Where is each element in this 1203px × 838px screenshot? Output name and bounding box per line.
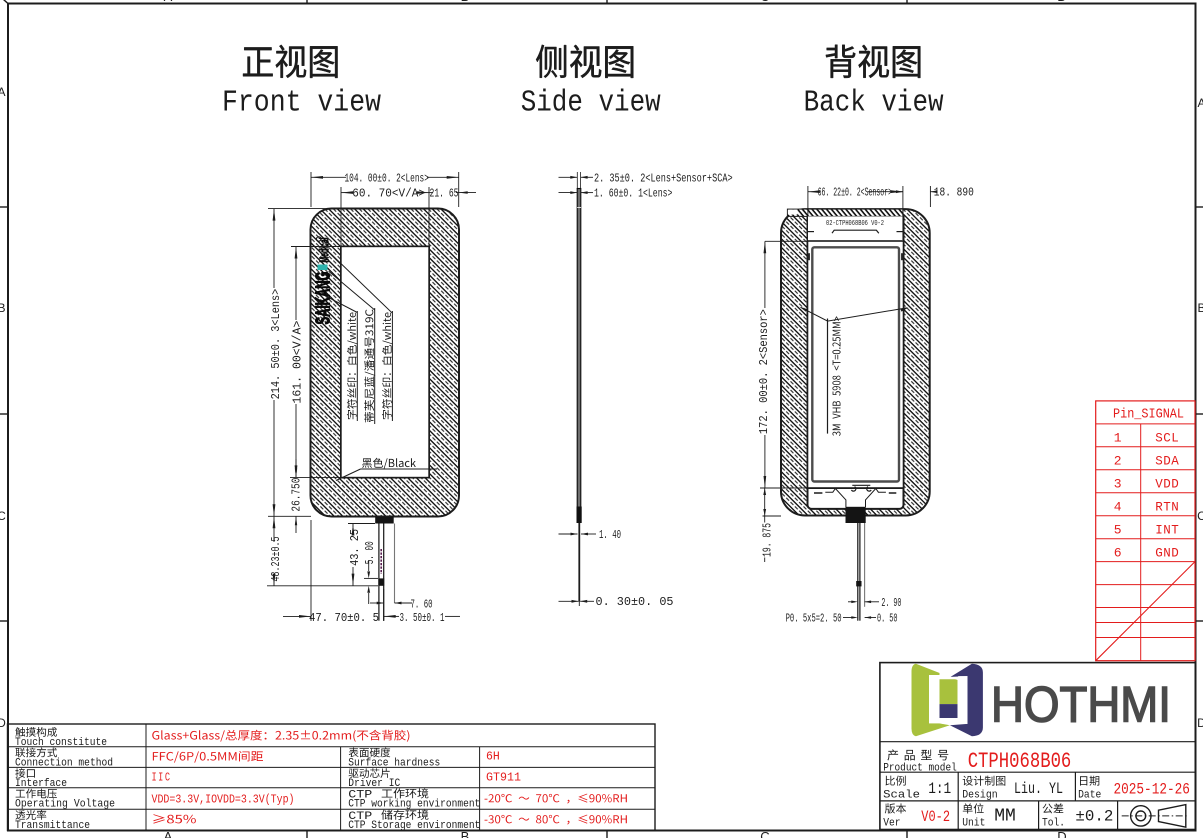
svg-text:C: C [1197, 509, 1203, 523]
svg-text:Driver IC: Driver IC [348, 778, 400, 790]
svg-text:Front view: Front view [222, 86, 381, 121]
svg-text:SAIKANG: SAIKANG [313, 272, 335, 325]
svg-text:VDD=3.3V,IOVDD=3.3V(Typ): VDD=3.3V,IOVDD=3.3V(Typ) [152, 793, 295, 806]
svg-text:2025-12-26: 2025-12-26 [1114, 781, 1190, 799]
svg-text:B: B [461, 0, 470, 4]
svg-text:Connection method: Connection method [15, 758, 113, 770]
svg-text:3: 3 [1114, 477, 1122, 492]
svg-text:B: B [1197, 301, 1203, 315]
svg-text:SDA: SDA [1155, 455, 1179, 469]
svg-text:C: C [760, 0, 769, 4]
svg-text:GT911: GT911 [486, 771, 521, 784]
svg-text:SCL: SCL [1155, 432, 1179, 446]
svg-text:CTPH068B06: CTPH068B06 [968, 749, 1072, 774]
svg-text:V0-2: V0-2 [921, 808, 950, 826]
svg-text:161. 00<V/A>: 161. 00<V/A> [290, 321, 304, 404]
svg-text:Pin_SIGNAL: Pin_SIGNAL [1113, 407, 1184, 423]
svg-text:1. 40: 1. 40 [599, 528, 621, 542]
svg-text:A: A [0, 85, 6, 99]
svg-text:60. 70<V/A>: 60. 70<V/A> [352, 186, 425, 200]
svg-text:P0. 5x5=2. 50: P0. 5x5=2. 50 [786, 612, 842, 626]
svg-text:Touch constitute: Touch constitute [15, 737, 107, 749]
svg-text:CTP working environment: CTP working environment [348, 799, 480, 811]
svg-text:214. 50±0. 3<Lens>: 214. 50±0. 3<Lens> [269, 289, 283, 400]
svg-text:A: A [1197, 96, 1203, 110]
svg-text:3. 50±0. 1: 3. 50±0. 1 [400, 611, 445, 625]
svg-text:Tol.: Tol. [1042, 817, 1065, 829]
svg-text:26.750: 26.750 [289, 478, 303, 512]
svg-text:1. 60±0. 1<Lens>: 1. 60±0. 1<Lens> [594, 186, 672, 200]
svg-text:MM: MM [994, 807, 1016, 827]
svg-text:Date: Date [1078, 789, 1101, 801]
svg-text:2. 90: 2. 90 [881, 596, 901, 610]
svg-text:02-CTPH068B06 V0-2: 02-CTPH068B06 V0-2 [826, 220, 884, 228]
svg-text:D: D [1197, 716, 1203, 730]
svg-text:CTP Storage environment: CTP Storage environment [348, 820, 480, 832]
svg-text:Back view: Back view [804, 86, 944, 121]
svg-text:Operating Voltage: Operating Voltage [15, 799, 115, 811]
svg-text:66. 22±0. 2<Sensor>: 66. 22±0. 2<Sensor> [818, 186, 892, 200]
svg-text:1: 1 [1114, 431, 1122, 446]
svg-text:Liu. YL: Liu. YL [1014, 780, 1063, 798]
svg-text:Side view: Side view [521, 86, 661, 121]
svg-text:Ver: Ver [883, 817, 900, 829]
svg-text:B: B [0, 301, 6, 315]
svg-text:INT: INT [1155, 524, 1179, 538]
svg-text:Scale: Scale [883, 789, 920, 801]
svg-text:Unit: Unit [962, 817, 985, 829]
svg-text:18. 890: 18. 890 [934, 186, 974, 200]
svg-text:47. 70±0. 5: 47. 70±0. 5 [309, 611, 379, 625]
svg-text:6: 6 [1114, 546, 1122, 561]
svg-text:C: C [0, 509, 6, 523]
svg-text:172. 00±0. 2<Sensor>: 172. 00±0. 2<Sensor> [757, 309, 771, 434]
svg-text:7. 60: 7. 60 [411, 597, 433, 611]
svg-text:0. 30±0. 05: 0. 30±0. 05 [596, 595, 674, 609]
svg-text:21. 65: 21. 65 [430, 186, 459, 200]
svg-text:104. 00±0. 2<Lens>: 104. 00±0. 2<Lens> [344, 171, 429, 185]
svg-text:5: 5 [1114, 523, 1122, 538]
svg-text:19. 875: 19. 875 [761, 523, 775, 557]
svg-text:VDD: VDD [1155, 478, 1179, 492]
svg-text:Product model: Product model [883, 762, 957, 774]
svg-text:RTN: RTN [1155, 501, 1179, 515]
svg-text:1:1: 1:1 [928, 780, 951, 798]
svg-text:6H: 6H [486, 751, 500, 764]
svg-text:IIC: IIC [152, 771, 172, 784]
svg-text:HOTHMI: HOTHMI [991, 677, 1171, 733]
svg-text:D: D [1057, 0, 1066, 4]
svg-text:Surface hardness: Surface hardness [348, 758, 440, 770]
svg-text:4: 4 [1114, 500, 1122, 515]
svg-text:C: C [760, 829, 769, 838]
svg-text:±0.2: ±0.2 [1075, 808, 1113, 826]
svg-text:D: D [1057, 829, 1066, 838]
svg-text:43. 25: 43. 25 [348, 529, 362, 566]
svg-text:2. 35±0. 2<Lens+Sensor+SCA>: 2. 35±0. 2<Lens+Sensor+SCA> [594, 171, 733, 185]
svg-text:D: D [0, 716, 6, 730]
svg-text:48.23±0.5: 48.23±0.5 [270, 536, 283, 581]
svg-text:A: A [164, 0, 173, 4]
svg-text:2: 2 [1114, 454, 1122, 469]
svg-text:Transmittance: Transmittance [15, 820, 90, 832]
svg-text:0. 50: 0. 50 [877, 612, 898, 626]
svg-text:5. 00: 5. 00 [363, 541, 377, 564]
svg-text:Design: Design [962, 789, 998, 801]
svg-text:Interface: Interface [15, 778, 67, 790]
svg-text:GND: GND [1155, 547, 1179, 561]
